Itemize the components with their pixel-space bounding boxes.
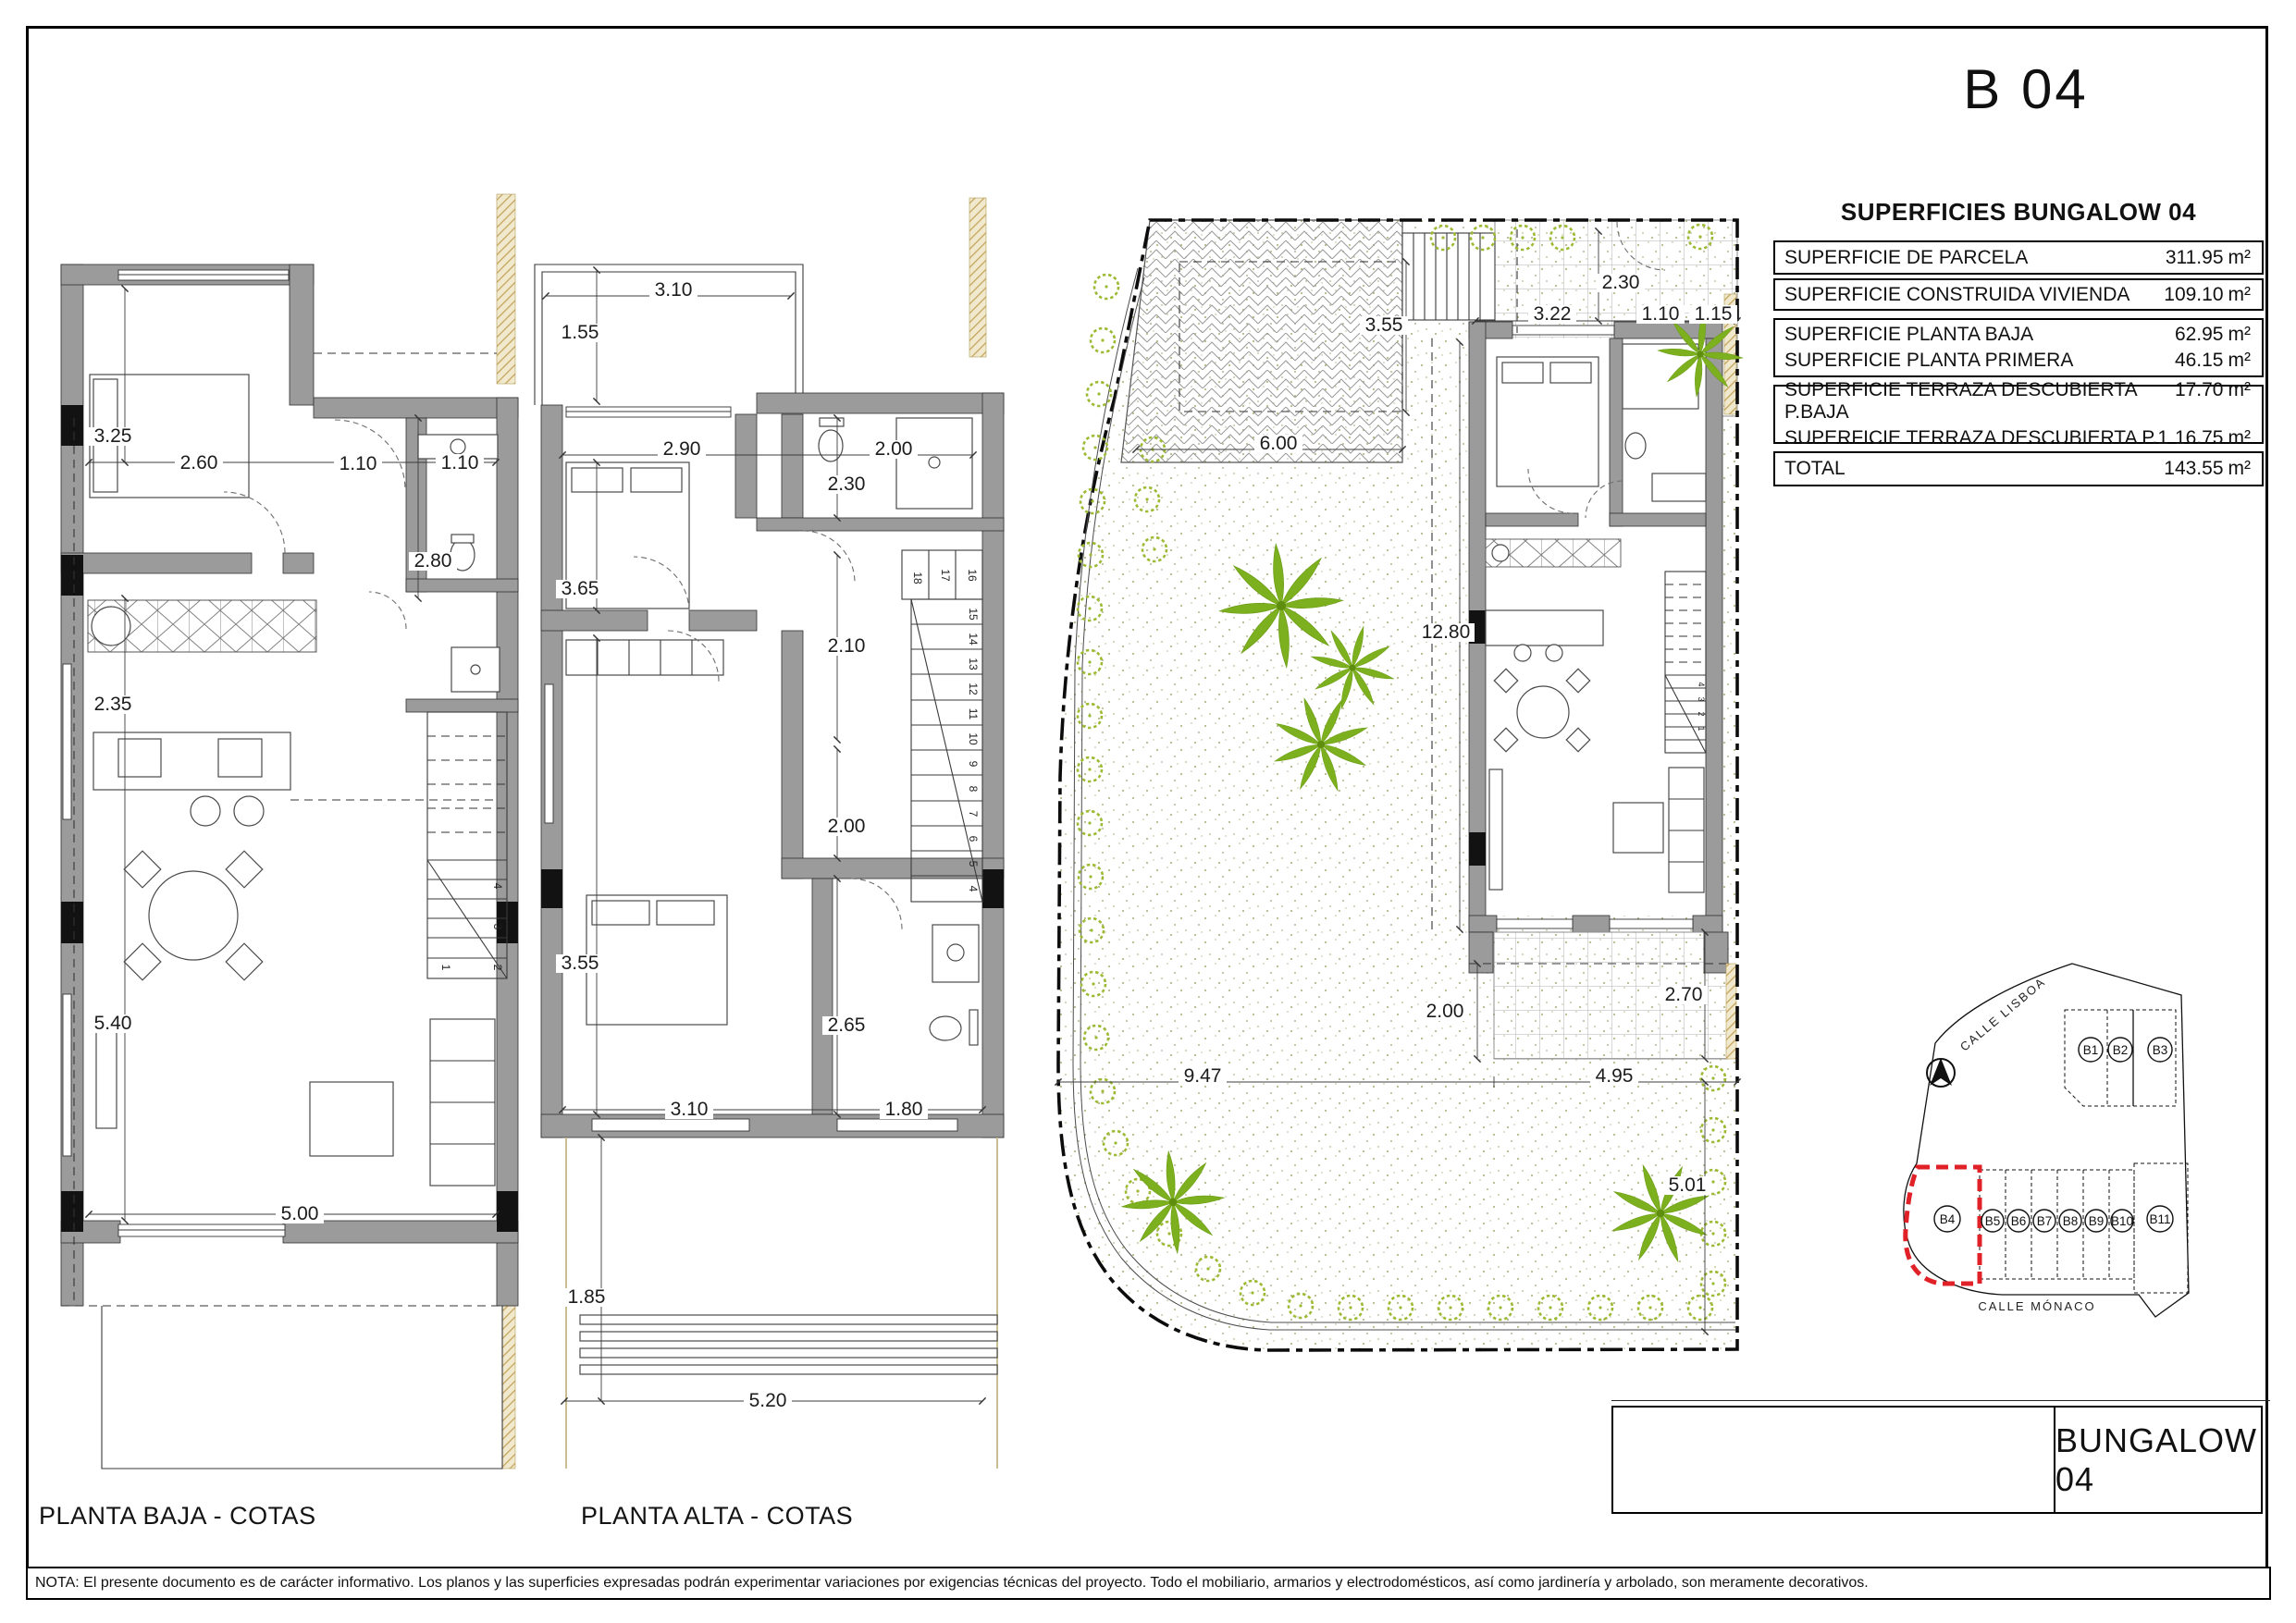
table-row: SUPERFICIE PLANTA BAJA 62.95m² — [1775, 322, 2262, 348]
title-block-empty-cell — [1613, 1408, 2055, 1512]
plan-caption-planta-baja: PLANTA BAJA - COTAS — [39, 1502, 316, 1531]
row-value: 62.95m² — [2175, 324, 2251, 346]
row-value: 17.70m² — [2175, 379, 2251, 401]
row-label: SUPERFICIE DE PARCELA — [1784, 247, 2028, 269]
row-label: SUPERFICIE PLANTA BAJA — [1784, 324, 2033, 346]
note-bar: NOTA: El presente documento es de caráct… — [26, 1567, 2271, 1600]
surfaces-group: SUPERFICIE PLANTA BAJA 62.95m² SUPERFICI… — [1773, 318, 2264, 377]
row-value: 109.10m² — [2164, 284, 2251, 306]
row-label: SUPERFICIE CONSTRUIDA VIVIENDA — [1784, 284, 2129, 306]
row-value: 16.75m² — [2175, 427, 2251, 449]
unit-code: B 04 — [1906, 57, 2146, 121]
table-row: SUPERFICIE DE PARCELA 311.95m² — [1775, 245, 2262, 271]
row-label: SUPERFICIE PLANTA PRIMERA — [1784, 350, 2073, 372]
surfaces-group: SUPERFICIE CONSTRUIDA VIVIENDA 109.10m² — [1773, 278, 2264, 311]
row-label: SUPERFICIE TERRAZA DESCUBIERTA P.1 — [1784, 427, 2168, 449]
note-text: NOTA: El presente documento es de caráct… — [35, 1575, 1869, 1592]
table-row: SUPERFICIE TERRAZA DESCUBIERTA P.1 16.75… — [1775, 425, 2262, 451]
row-label: SUPERFICIE TERRAZA DESCUBIERTA P.BAJA — [1784, 379, 2175, 424]
table-row: SUPERFICIE TERRAZA DESCUBIERTA P.BAJA 17… — [1775, 377, 2262, 425]
surfaces-group: SUPERFICIE DE PARCELA 311.95m² — [1773, 240, 2264, 275]
row-value: 46.15m² — [2175, 350, 2251, 372]
row-value: 143.55m² — [2164, 458, 2251, 480]
title-block: BUNGALOW 04 — [1611, 1406, 2263, 1514]
sheet-title: BUNGALOW 04 — [2055, 1408, 2261, 1512]
plan-caption-planta-alta: PLANTA ALTA - COTAS — [581, 1502, 853, 1531]
titleblock-rule — [1611, 1400, 2270, 1401]
surfaces-table-title: SUPERFICIES BUNGALOW 04 — [1773, 198, 2264, 227]
row-label: TOTAL — [1784, 458, 1845, 480]
table-row: SUPERFICIE CONSTRUIDA VIVIENDA 109.10m² — [1775, 282, 2262, 308]
surfaces-group: TOTAL 143.55m² — [1773, 451, 2264, 486]
table-row: TOTAL 143.55m² — [1775, 456, 2262, 482]
plan-sheet: 1 2 3 4 — [0, 0, 2296, 1623]
table-row: SUPERFICIE PLANTA PRIMERA 46.15m² — [1775, 348, 2262, 374]
row-value: 311.95m² — [2166, 247, 2251, 269]
surfaces-group: SUPERFICIE TERRAZA DESCUBIERTA P.BAJA 17… — [1773, 385, 2264, 444]
